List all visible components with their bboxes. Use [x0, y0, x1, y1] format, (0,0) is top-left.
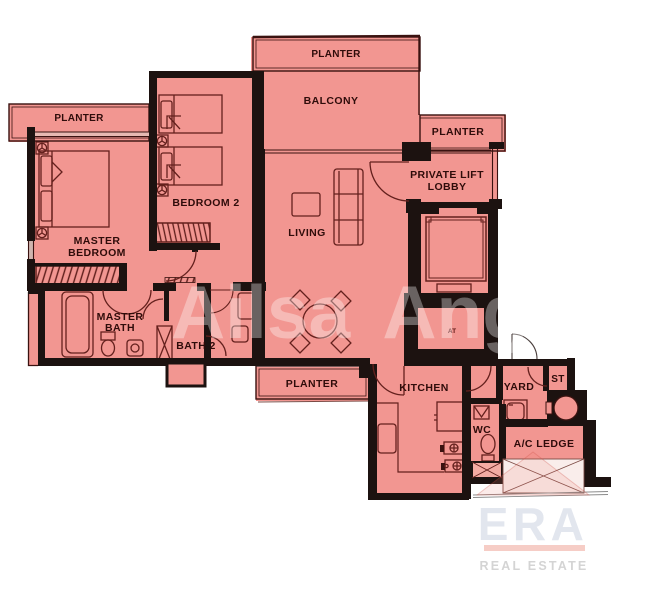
svg-text:BALCONY: BALCONY	[304, 95, 359, 107]
svg-text:WC: WC	[473, 424, 491, 436]
svg-text:YARD: YARD	[504, 381, 534, 393]
svg-text:REAL ESTATE: REAL ESTATE	[480, 559, 589, 573]
svg-text:LOBBY: LOBBY	[428, 181, 467, 193]
svg-text:BEDROOM 2: BEDROOM 2	[172, 197, 239, 209]
svg-text:PLANTER: PLANTER	[432, 126, 484, 138]
svg-text:PLANTER: PLANTER	[54, 113, 104, 124]
svg-text:MASTER: MASTER	[74, 235, 121, 247]
svg-text:A/C LEDGE: A/C LEDGE	[514, 438, 575, 450]
svg-text:LIVING: LIVING	[288, 227, 325, 239]
svg-text:PLANTER: PLANTER	[286, 378, 338, 390]
svg-text:Ailsa Ang: Ailsa Ang	[171, 270, 528, 354]
svg-text:PRIVATE LIFT: PRIVATE LIFT	[410, 169, 484, 181]
svg-text:KITCHEN: KITCHEN	[399, 382, 448, 394]
svg-text:BATH: BATH	[105, 322, 135, 334]
svg-text:ST: ST	[551, 374, 564, 385]
svg-text:BEDROOM: BEDROOM	[68, 247, 126, 259]
svg-text:ERA: ERA	[478, 498, 589, 550]
svg-text:PLANTER: PLANTER	[311, 49, 361, 60]
